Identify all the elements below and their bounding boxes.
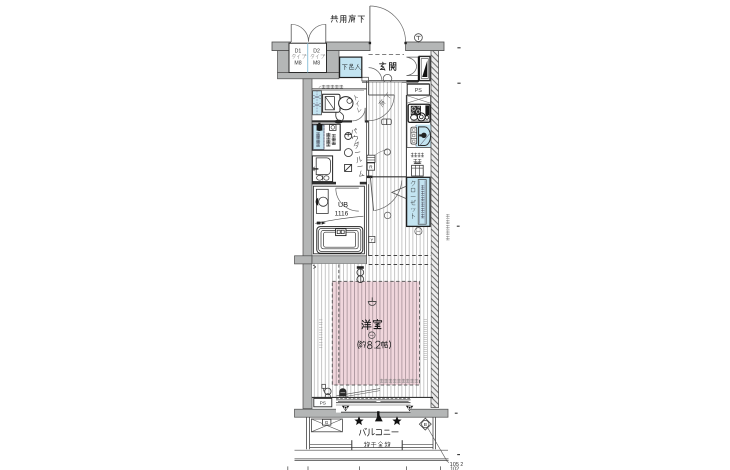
svg-text:B: B [424, 422, 427, 428]
svg-text:2: 2 [460, 462, 463, 468]
svg-text:102: 102 [450, 467, 459, 470]
svg-text:M8: M8 [294, 61, 301, 67]
svg-text:M8: M8 [313, 61, 320, 67]
svg-text:G: G [325, 420, 329, 425]
svg-text:PS: PS [320, 401, 326, 407]
svg-text:D1: D1 [295, 48, 302, 54]
svg-text:Y: Y [370, 237, 373, 242]
svg-text:PS: PS [415, 88, 423, 94]
svg-text:1116: 1116 [335, 210, 349, 217]
svg-text:D2: D2 [313, 48, 320, 54]
